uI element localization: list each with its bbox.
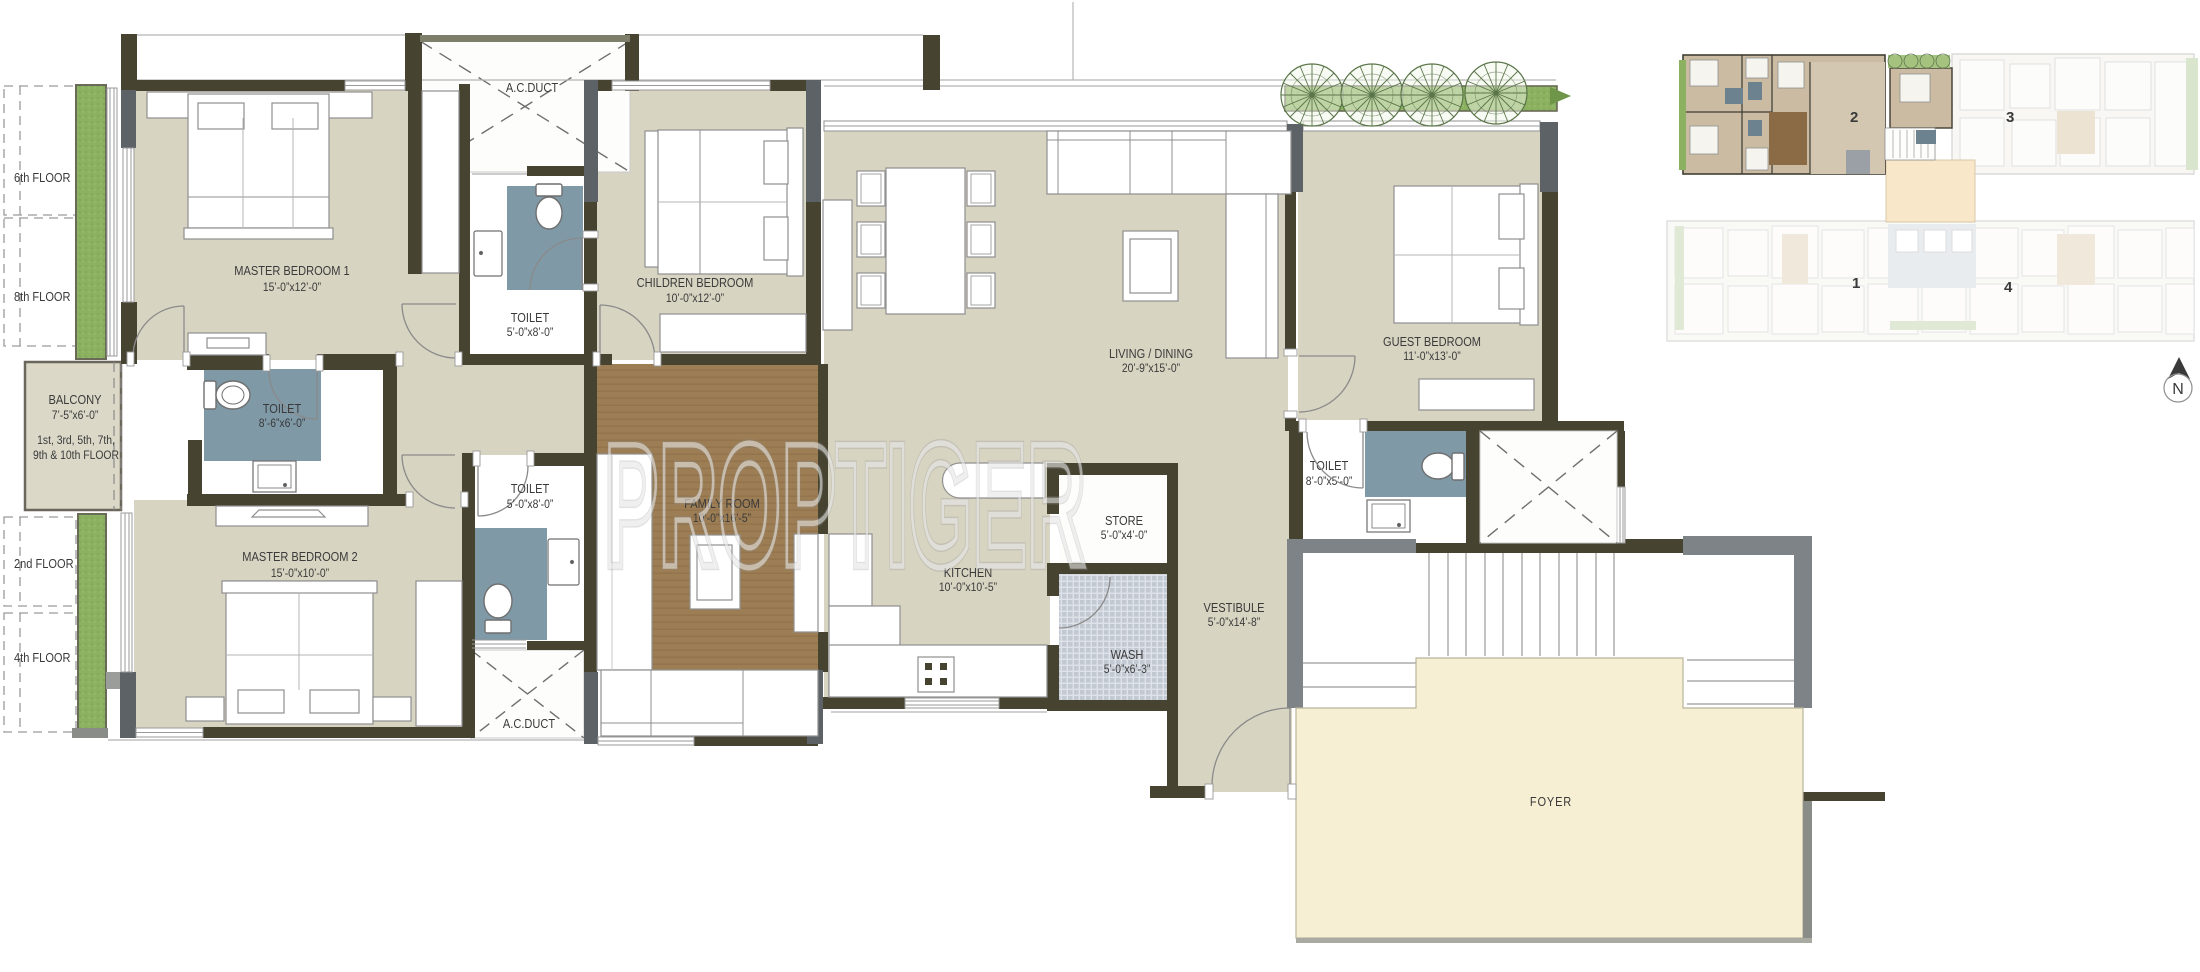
svg-text:11’-0”x13’-0”: 11’-0”x13’-0” [1403,349,1460,363]
svg-text:GUEST BEDROOM: GUEST BEDROOM [1383,334,1481,349]
svg-text:TOILET: TOILET [511,310,550,325]
svg-text:TOILET: TOILET [1310,458,1349,473]
svg-text:8’-6”x6’-0”: 8’-6”x6’-0” [259,416,306,430]
svg-text:STORE: STORE [1105,513,1143,528]
svg-text:BALCONY: BALCONY [48,392,101,407]
svg-text:15’-0”x10’-0”: 15’-0”x10’-0” [271,566,329,580]
svg-text:TOILET: TOILET [263,401,302,416]
svg-text:CHILDREN BEDROOM: CHILDREN BEDROOM [637,275,754,290]
svg-text:2: 2 [1850,109,1858,126]
svg-text:A.C.DUCT: A.C.DUCT [506,80,558,95]
svg-text:8th FLOOR: 8th FLOOR [14,289,71,304]
svg-text:1: 1 [1852,275,1860,292]
svg-text:4th FLOOR: 4th FLOOR [14,650,71,665]
svg-text:3: 3 [2006,109,2014,126]
svg-text:PROPTIGER: PROPTIGER [604,408,1086,604]
svg-text:15’-0”x12’-0”: 15’-0”x12’-0” [263,280,321,294]
svg-text:5’-0”x8’-0”: 5’-0”x8’-0” [507,497,554,511]
svg-text:LIVING / DINING: LIVING / DINING [1109,346,1193,361]
svg-text:FOYER: FOYER [1530,794,1572,809]
svg-text:6th FLOOR: 6th FLOOR [14,170,71,185]
svg-text:5’-0”x4’-0”: 5’-0”x4’-0” [1101,528,1148,542]
svg-text:1st, 3rd, 5th, 7th,: 1st, 3rd, 5th, 7th, [37,433,115,447]
svg-text:MASTER BEDROOM 2: MASTER BEDROOM 2 [242,549,357,564]
svg-text:10’-0”x12’-0”: 10’-0”x12’-0” [666,291,724,305]
svg-text:VESTIBULE: VESTIBULE [1203,600,1264,615]
svg-text:4: 4 [2004,279,2013,296]
svg-text:9th & 10th FLOOR: 9th & 10th FLOOR [33,448,119,462]
svg-text:5’-0”x6’-3”: 5’-0”x6’-3” [1104,662,1151,676]
svg-text:N: N [2172,381,2184,398]
svg-text:MASTER BEDROOM 1: MASTER BEDROOM 1 [234,263,349,278]
svg-text:TOILET: TOILET [511,481,550,496]
svg-text:5’-0”x8’-0”: 5’-0”x8’-0” [507,325,554,339]
svg-text:2nd FLOOR: 2nd FLOOR [14,556,74,571]
svg-text:WASH: WASH [1111,647,1144,662]
svg-text:7’-5”x6’-0”: 7’-5”x6’-0” [52,408,99,422]
svg-text:5’-0”x14’-8”: 5’-0”x14’-8” [1208,615,1260,629]
svg-text:20’-9”x15’-0”: 20’-9”x15’-0” [1122,361,1180,375]
svg-text:A.C.DUCT: A.C.DUCT [503,716,555,731]
